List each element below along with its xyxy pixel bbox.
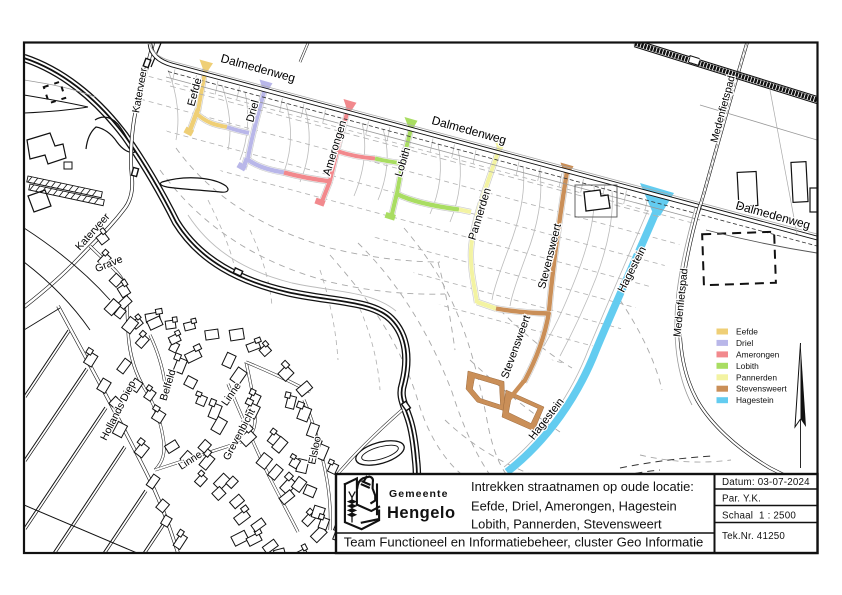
svg-text:Gemeente: Gemeente [389, 488, 449, 500]
svg-text:Datum: 03-07-2024: Datum: 03-07-2024 [722, 477, 810, 488]
svg-text:Pannerden: Pannerden [736, 372, 777, 382]
svg-text:Par. Y.K.: Par. Y.K. [722, 494, 761, 505]
svg-text:Tek.Nr. 41250: Tek.Nr. 41250 [722, 531, 785, 542]
svg-text:Lobith, Pannerden, Stevensweer: Lobith, Pannerden, Stevensweert [471, 517, 662, 532]
svg-text:Eefde, Driel, Amerongen, Hages: Eefde, Driel, Amerongen, Hagestein [471, 499, 677, 514]
svg-text:Lobith: Lobith [736, 361, 759, 371]
svg-text:Team Functioneel en Informatie: Team Functioneel en Informatiebeheer, cl… [344, 535, 704, 550]
svg-text:Intrekken straatnamen op oude: Intrekken straatnamen op oude locatie: [471, 479, 694, 494]
svg-text:Amerongen: Amerongen [736, 349, 780, 359]
svg-text:Driel: Driel [736, 338, 753, 348]
svg-text:Schaal 1 : 2500: Schaal 1 : 2500 [722, 511, 796, 522]
svg-text:Eefde: Eefde [736, 327, 758, 337]
svg-text:Hagestein: Hagestein [736, 395, 774, 405]
svg-text:Hengelo: Hengelo [387, 504, 456, 522]
svg-text:Stevensweert: Stevensweert [736, 384, 787, 394]
